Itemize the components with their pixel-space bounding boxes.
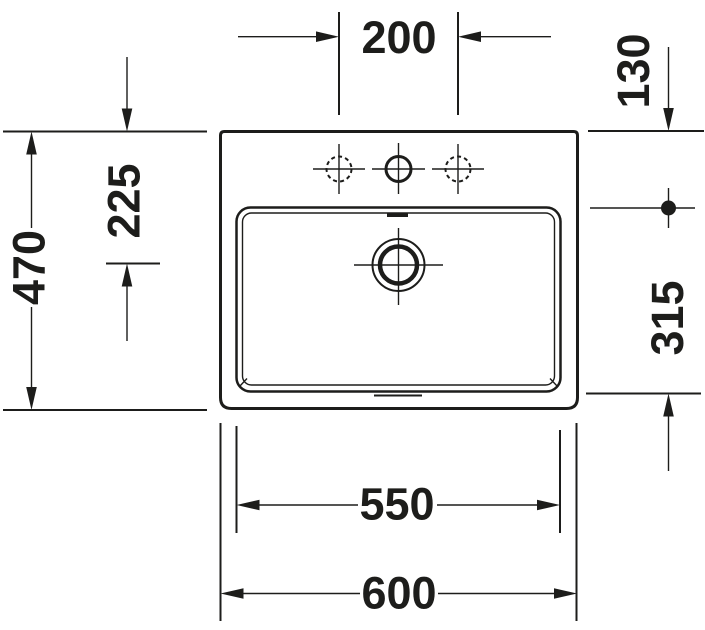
dimension-label-550: 550 [359,479,434,530]
drain [354,228,443,305]
basin [221,132,578,409]
arrowhead-down [122,109,133,132]
arrowhead-left [458,31,481,42]
dimension-130: 130 [588,33,704,228]
overflow-slot [387,213,408,217]
dimension-225: 225 [99,57,161,341]
washbasin-technical-drawing: 200 130 315 470 225 [0,0,705,630]
arrowhead-right [537,500,560,511]
arrowhead-down [26,387,37,410]
tap-holes [313,143,484,194]
dimension-label-600: 600 [361,568,436,619]
dimension-315: 315 [586,280,701,471]
dimension-200: 200 [238,12,551,115]
arrowhead-right [554,588,577,599]
dimension-label-315: 315 [642,280,693,355]
arrowhead-right [316,31,339,42]
reference-point [590,188,695,228]
dimension-label-200: 200 [361,12,436,63]
dimension-550: 550 [237,426,561,533]
tap-hole-left [313,144,365,194]
tap-hole-right [432,144,484,194]
tap-hole-center [372,143,425,194]
reference-dot [661,201,676,216]
dimension-label-130: 130 [608,33,659,108]
drawing-canvas: 200 130 315 470 225 [0,0,705,630]
arrowhead-down [663,108,674,131]
dimension-label-225: 225 [99,163,150,238]
dimension-label-470: 470 [4,230,55,305]
